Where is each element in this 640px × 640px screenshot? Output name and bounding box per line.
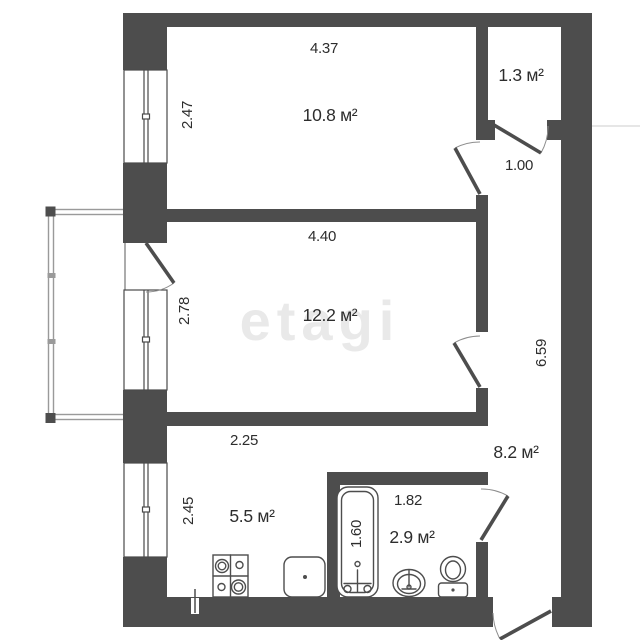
dimension-label: 1.00 [505, 157, 533, 174]
window-latch [143, 114, 150, 119]
wall-segment [476, 195, 488, 332]
floor-plan: etagi [0, 0, 640, 640]
balcony-corner-post [46, 207, 56, 217]
window-symbol [124, 290, 167, 390]
wall-segment [123, 209, 477, 222]
balcony-corner-post [46, 413, 56, 423]
toilet-bowl-inner [446, 561, 461, 579]
stove-burner [236, 562, 243, 569]
sink-drain [303, 575, 307, 579]
dimension-label: 6.59 [533, 339, 550, 367]
stove-burner [218, 584, 225, 591]
wall-segment [123, 557, 167, 627]
wall-segment [123, 597, 493, 627]
wall-segment [476, 27, 488, 120]
dimension-label: 2.45 [180, 497, 197, 525]
dimension-label: 2.25 [230, 432, 258, 449]
wall-segment [552, 597, 592, 627]
dimension-label: 4.37 [310, 40, 338, 57]
stove-icon [213, 555, 248, 597]
room-area-label: 8.2 м² [493, 442, 539, 462]
window-latch [143, 507, 150, 512]
dimension-label: 1.82 [394, 492, 422, 509]
window-symbol [124, 463, 167, 557]
floor-plan-drawing: etagi [0, 0, 640, 640]
wall-segment [327, 472, 488, 485]
wall-segment [547, 120, 561, 140]
wall-segment [123, 390, 167, 463]
room-area-label: 5.5 м² [229, 506, 275, 526]
wall-segment [123, 163, 167, 243]
stove-burner [218, 562, 226, 570]
wall-segment [476, 542, 488, 598]
window-latch [143, 337, 150, 342]
window-symbol [124, 70, 167, 163]
room-area-label: 10.8 м² [303, 105, 358, 125]
room-area-label: 12.2 м² [303, 305, 358, 325]
room-area-label: 2.9 м² [389, 527, 435, 547]
balcony-rail-joint [48, 273, 56, 278]
wall-segment [123, 412, 477, 426]
wall-segment [123, 13, 592, 27]
toilet-tank-button [451, 588, 454, 591]
balcony-rail-joint [48, 339, 56, 344]
toilet-icon [439, 557, 468, 598]
dimension-label: 4.40 [308, 228, 336, 245]
wall-segment [561, 13, 592, 627]
washbasin-icon [393, 570, 425, 597]
kitchen-sink-icon [284, 557, 325, 597]
dimension-label: 2.47 [179, 101, 196, 129]
wall-segment [476, 120, 495, 140]
wall-segment [123, 13, 167, 70]
dimension-label: 2.78 [176, 297, 193, 325]
stove-burner [234, 583, 242, 591]
wall-segment [476, 388, 488, 426]
room-area-label: 1.3 м² [498, 65, 544, 85]
dimension-label: 1.60 [348, 520, 365, 548]
